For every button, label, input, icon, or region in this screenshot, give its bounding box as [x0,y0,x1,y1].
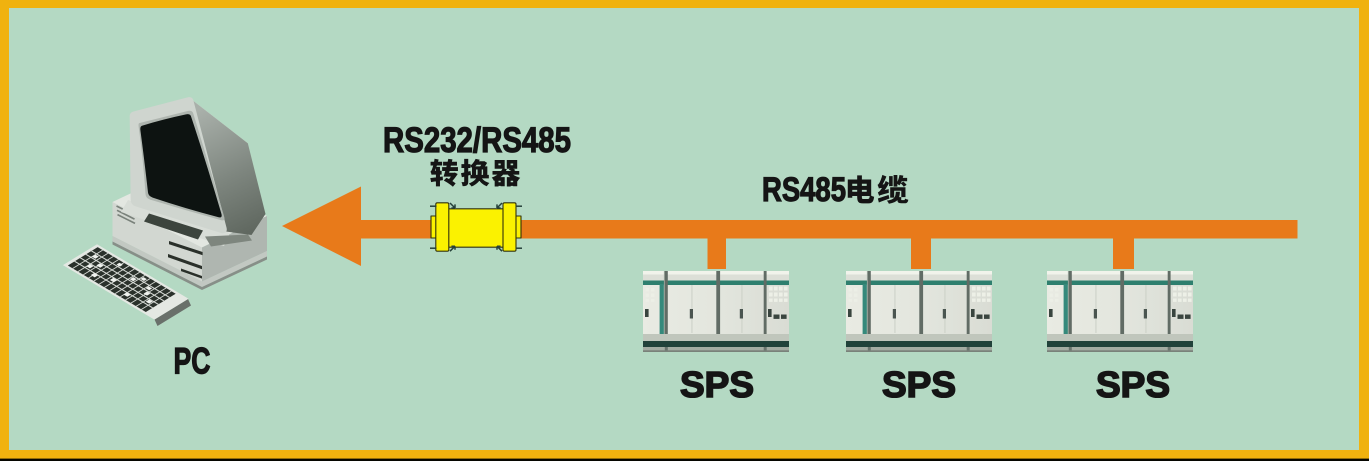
svg-text:RS232/RS485: RS232/RS485 [383,121,571,160]
svg-text:SPS: SPS [680,364,754,405]
svg-text:PC: PC [174,341,211,382]
svg-text:SPS: SPS [882,364,956,405]
svg-text:SPS: SPS [1096,364,1170,405]
svg-text:RS485: RS485 [762,171,846,209]
